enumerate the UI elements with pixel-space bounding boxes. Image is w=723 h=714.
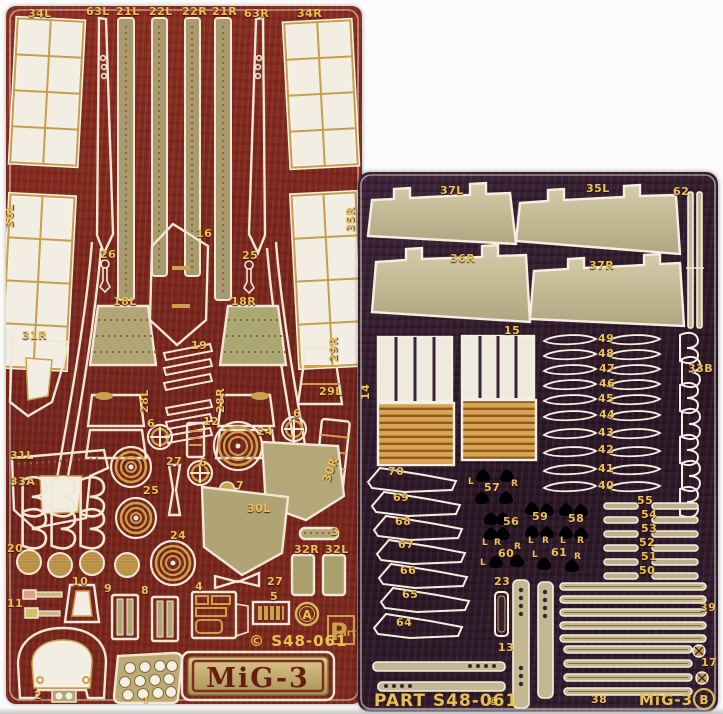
part-30L — [202, 487, 288, 575]
part-20-discs — [17, 550, 139, 577]
part-70-to-64-blades — [368, 468, 469, 638]
part-33B-clips — [680, 333, 700, 517]
fret-b-artwork: PART S48-061 © MiG-3 B — [358, 172, 718, 712]
part-63R — [249, 18, 265, 253]
part-18R — [220, 306, 286, 365]
part-55-to-50-strips — [604, 503, 698, 579]
part-17-bolts — [693, 645, 708, 684]
nameplate-text: MiG-3 — [206, 663, 310, 694]
part-8 — [152, 597, 178, 641]
part-27-vertical — [169, 465, 180, 515]
part-5 — [253, 602, 289, 624]
photo-of-photoetch-frets: MiG-3 A P art © S48-061 34L63L21L22L22R2… — [0, 0, 723, 714]
part-10 — [65, 585, 99, 622]
fret-letter-a: A — [302, 608, 312, 622]
part-18L — [90, 306, 156, 365]
part-25-small — [244, 261, 254, 293]
fret-a: MiG-3 A P art © S48-061 34L63L21L22L22R2… — [6, 6, 362, 704]
scanner-edge-shadow — [0, 707, 723, 714]
part-32R — [292, 555, 314, 595]
part-26 — [100, 260, 110, 292]
part-62-strips — [686, 192, 704, 328]
part-13-strips — [513, 580, 553, 708]
part-37L-flap — [368, 183, 516, 244]
fret-b: PART S48-061 © MiG-3 B 37L35L6236R37R151… — [358, 172, 718, 712]
part-36R-flap — [372, 245, 530, 322]
part-37R-flap — [530, 254, 684, 326]
part-23 — [495, 592, 508, 636]
mig3-nameplate: MiG-3 — [182, 652, 334, 700]
part-39-strip-group — [560, 583, 706, 642]
part-1-instrument-panel — [114, 653, 182, 703]
part-9 — [112, 595, 138, 639]
fret-letter-b: B — [699, 693, 708, 707]
part-56-to-61-pads — [475, 469, 588, 572]
fret-a-artwork: MiG-3 A P art © S48-061 — [6, 6, 362, 704]
part-35L-flap — [516, 185, 680, 254]
fret-letter-a-badge: A — [296, 603, 318, 625]
part-2-panel-frame — [18, 628, 106, 702]
window-frame-34R — [284, 20, 357, 167]
fret-letter-b-badge: B — [694, 689, 714, 709]
part-4 — [192, 592, 248, 638]
part-11 — [23, 590, 62, 618]
window-frame-34L — [10, 18, 83, 165]
part-27-horizontal — [215, 573, 259, 588]
part-49-to-40-airfoils — [544, 335, 660, 491]
part-63L — [97, 18, 113, 253]
part-38-strip-group — [564, 646, 692, 695]
part-32L — [323, 555, 345, 595]
part-3 — [300, 528, 338, 539]
fret-a-code: © S48-061 — [249, 632, 347, 650]
window-frame-36L — [6, 194, 74, 369]
part-rods — [373, 662, 505, 691]
part-15-grids — [378, 336, 536, 465]
part-straps-21-22 — [118, 18, 231, 300]
window-frame-35R — [292, 192, 362, 367]
